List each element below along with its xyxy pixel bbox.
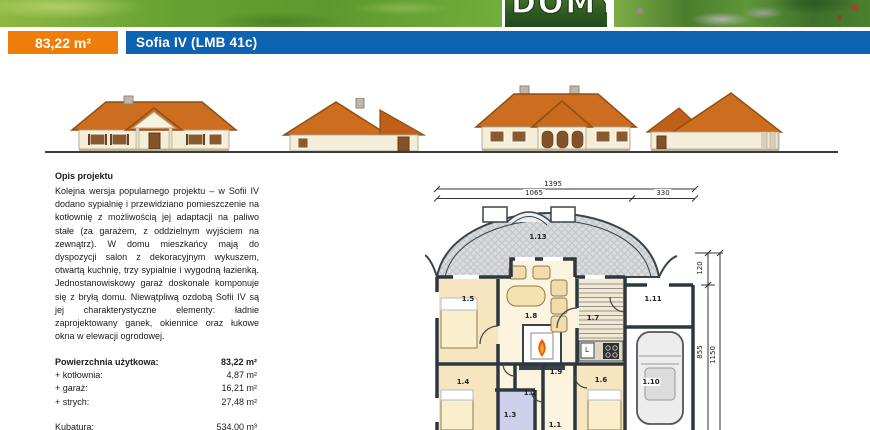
area-row: + garaż: 16,21 m² xyxy=(55,384,257,394)
room-label-hall: 1.9 xyxy=(550,368,562,376)
front-elevation-drawing xyxy=(70,95,238,153)
room-label-entry: 1.1 xyxy=(549,421,561,429)
room-label-kitchen: 1.7 xyxy=(587,314,599,322)
area-row: + strych: 27,48 m² xyxy=(55,398,257,408)
project-title: Sofia IV (LMB 41c) xyxy=(126,31,870,54)
floor-plan-drawing xyxy=(425,180,725,430)
grass-photo xyxy=(0,0,502,27)
brand-logo: DOMY xyxy=(511,0,610,21)
area-row: + kotłownia: 4,87 m² xyxy=(55,371,257,381)
garden-elevation-drawing xyxy=(474,85,639,153)
area-value: 4,87 m² xyxy=(226,371,257,381)
room-label-wc: 1.2 xyxy=(524,389,536,397)
area-label: Powierzchnia użytkowa: xyxy=(55,358,159,368)
area-value: 83,22 m² xyxy=(221,358,257,368)
room-label-bathroom: 1.3 xyxy=(504,411,516,419)
dimension-label: 1395 xyxy=(542,180,564,188)
area-label: + strych: xyxy=(55,398,89,408)
area-row: Powierzchnia użytkowa: 83,22 m² xyxy=(55,358,257,368)
room-label-bedroom-2: 1.4 xyxy=(457,378,469,386)
area-label: + garaż: xyxy=(55,384,88,394)
garden-photo xyxy=(614,0,870,27)
kubatura-row: Kubatura: 534,00 m³ xyxy=(55,422,257,430)
elevations-ground-line xyxy=(45,151,838,153)
dimension-label: 1065 xyxy=(523,189,545,197)
dimension-label: 855 xyxy=(696,343,704,360)
area-badge: 83,22 m² xyxy=(8,31,118,54)
area-table: Powierzchnia użytkowa: 83,22 m² + kotłow… xyxy=(55,358,257,411)
area-value: 16,21 m² xyxy=(221,384,257,394)
brand-logo-panel: DOMY xyxy=(502,0,610,30)
washer-label: L xyxy=(585,346,589,354)
kubatura-label: Kubatura: xyxy=(55,422,94,430)
header-photo-strip: DOMY xyxy=(0,0,870,27)
area-label: + kotłownia: xyxy=(55,371,103,381)
kubatura-value: 534,00 m³ xyxy=(216,422,257,430)
room-label-living: 1.8 xyxy=(525,312,537,320)
room-label-boiler: 1.11 xyxy=(644,295,661,303)
room-label-bedroom-3: 1.6 xyxy=(595,376,607,384)
left-side-elevation-drawing xyxy=(280,98,428,153)
dimension-label: 120 xyxy=(696,259,704,276)
catalog-page: DOMY 83,22 m² Sofia IV (LMB 41c) xyxy=(0,0,870,430)
room-label-terrace: 1.13 xyxy=(529,233,546,241)
right-side-elevation-drawing xyxy=(643,88,786,153)
area-value: 27,48 m² xyxy=(221,398,257,408)
description-body: Kolejna wersja popularnego projektu – w … xyxy=(55,185,259,343)
room-label-garage: 1.10 xyxy=(641,378,660,386)
dimension-label: 330 xyxy=(654,189,671,197)
room-label-bedroom-1: 1.5 xyxy=(462,295,474,303)
dimension-label: 1150 xyxy=(709,344,717,366)
description-heading: Opis projektu xyxy=(55,171,259,181)
